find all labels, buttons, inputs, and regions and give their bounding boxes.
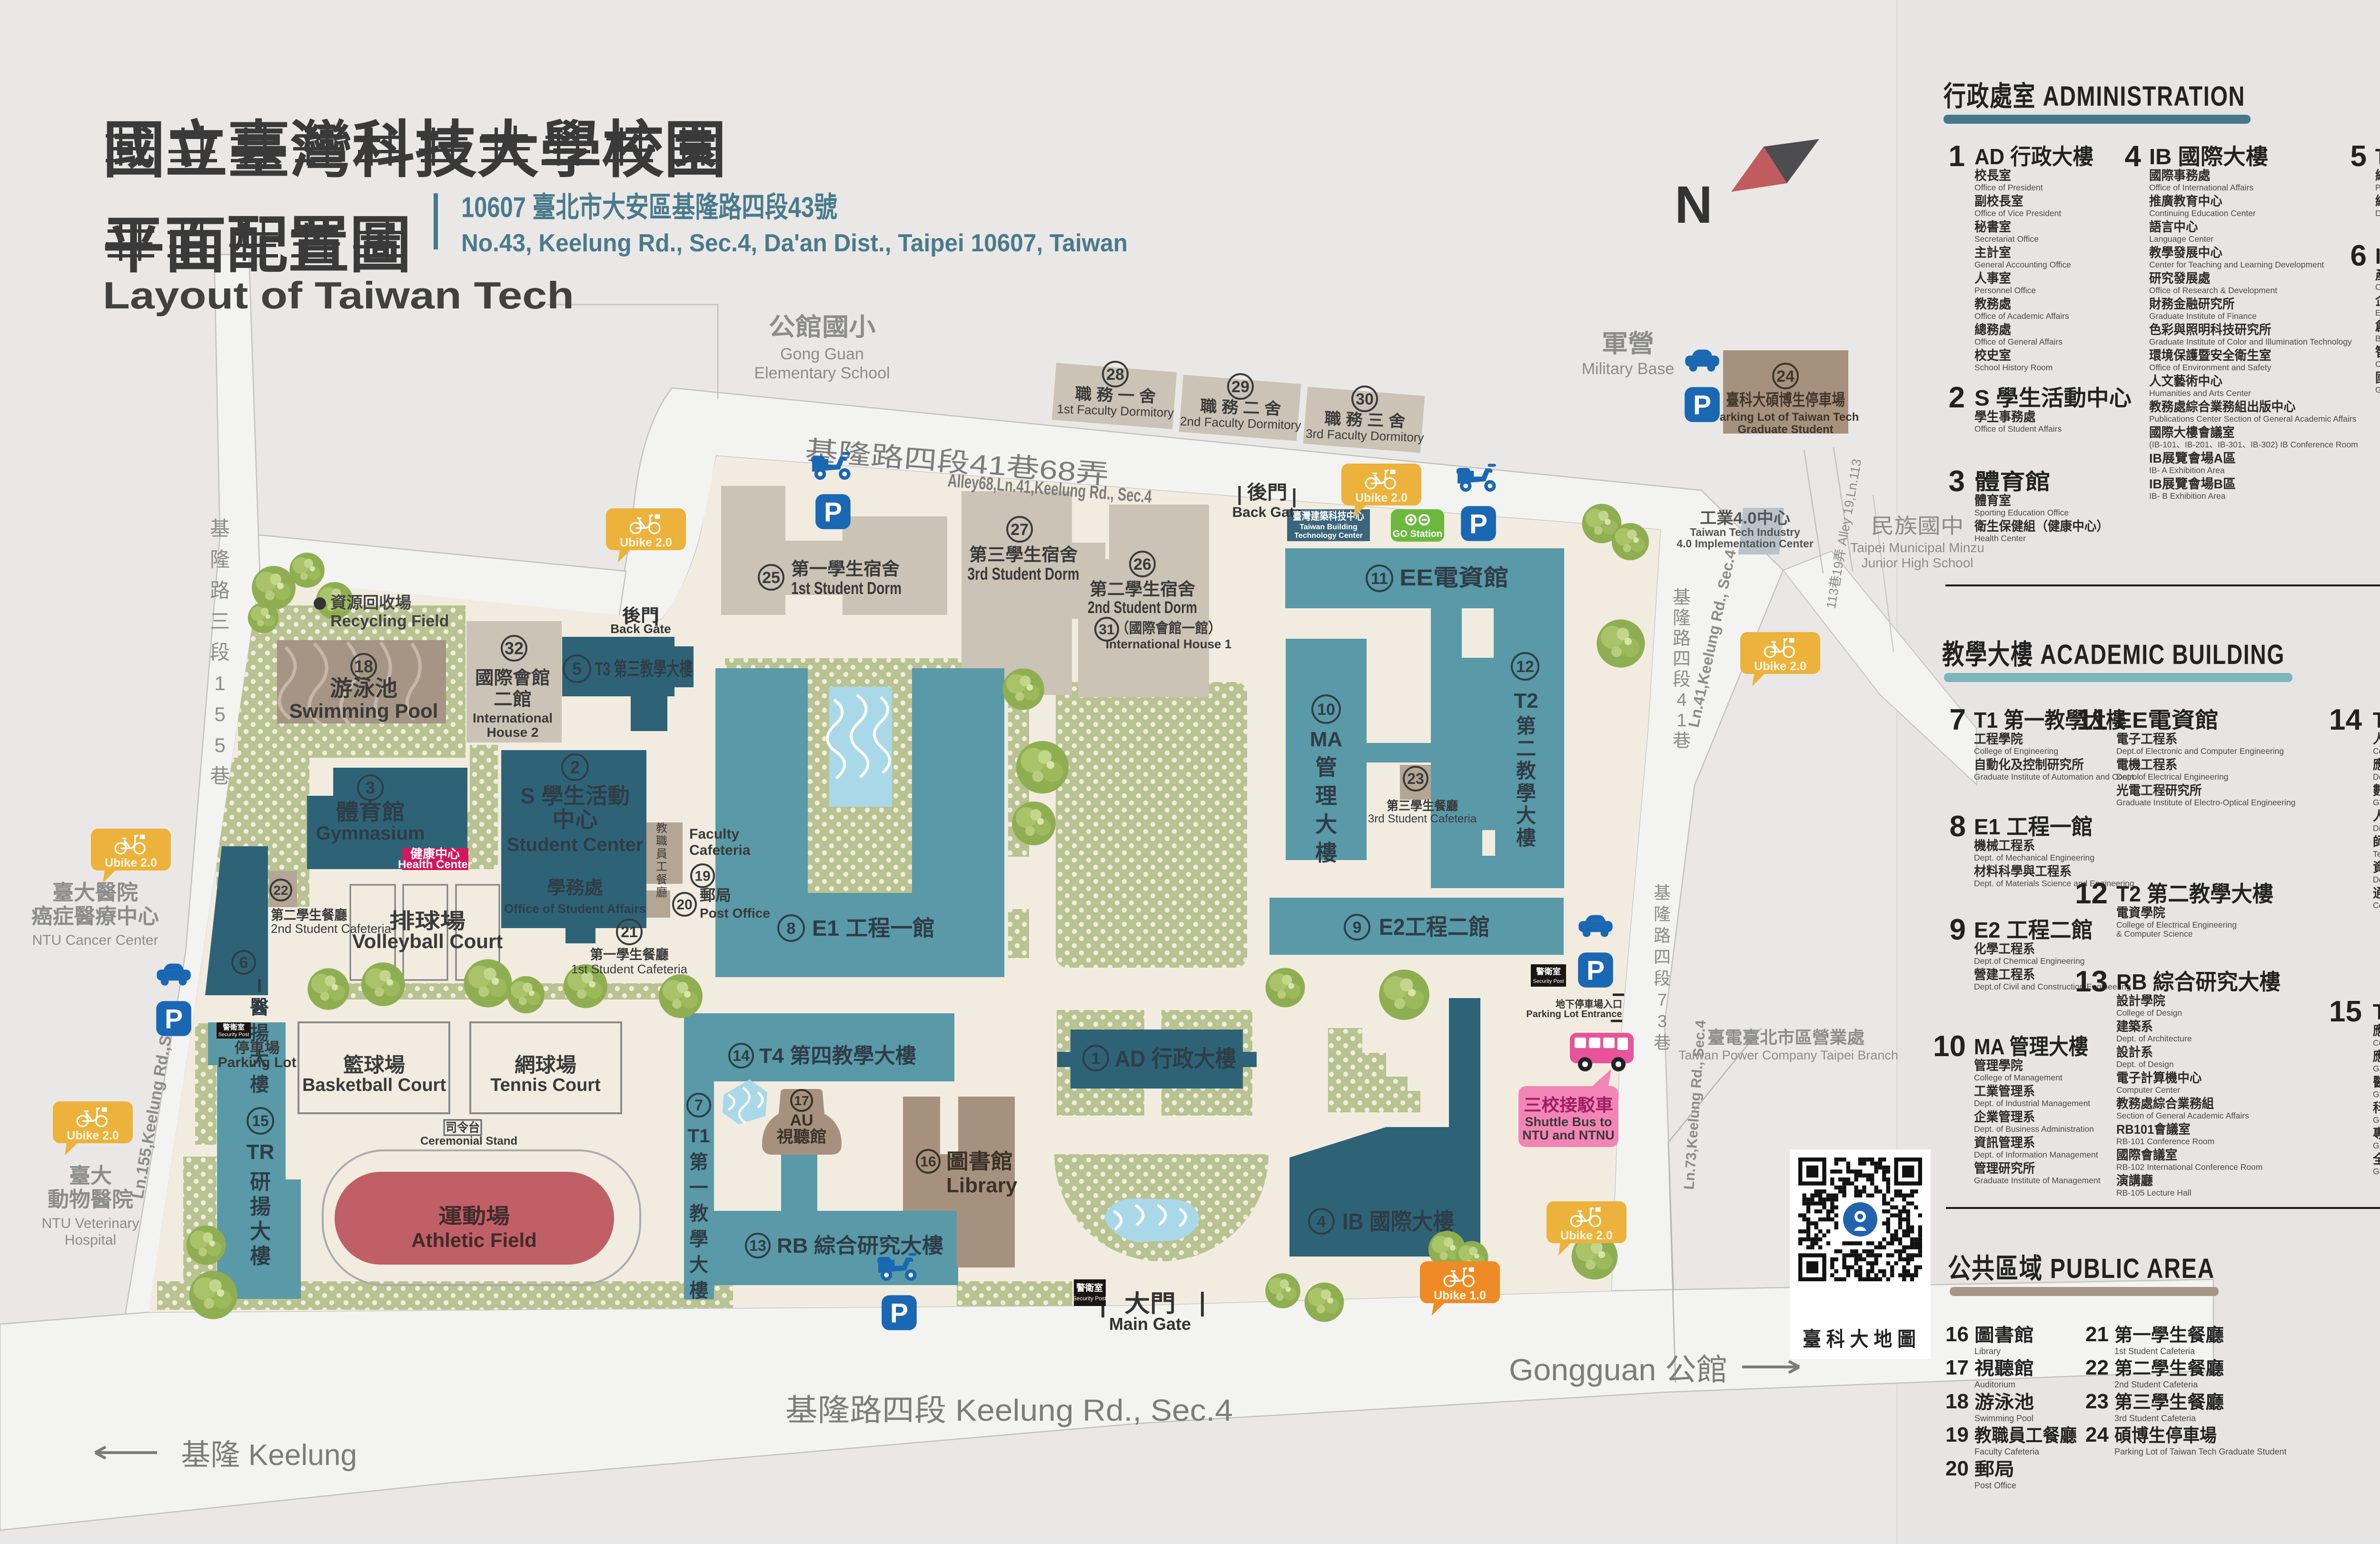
svg-text:郵局: 郵局 — [700, 887, 731, 904]
svg-text:Shuttle Bus to: Shuttle Bus to — [1525, 1115, 1612, 1129]
svg-text:Layout of Taiwan Tech: Layout of Taiwan Tech — [103, 274, 574, 317]
svg-text:Teacher Education Center: Teacher Education Center — [2373, 849, 2380, 859]
svg-text:三校接駁車: 三校接駁車 — [1524, 1095, 1613, 1115]
svg-text:公館國小: 公館國小 — [769, 314, 876, 341]
svg-text:衛生保健組（健康中心）: 衛生保健組（健康中心） — [1974, 519, 2109, 534]
svg-text:Office of General Affairs: Office of General Affairs — [1974, 337, 2063, 346]
svg-text:國際會館: 國際會館 — [475, 668, 550, 688]
svg-text:教職員工餐廳: 教職員工餐廳 — [1974, 1426, 2077, 1446]
svg-text:International: International — [473, 711, 553, 725]
svg-text:E1 工程一館: E1 工程一館 — [1974, 814, 2093, 839]
svg-text:電子計算機中心: 電子計算機中心 — [2116, 1070, 2202, 1085]
svg-text:國際會議室: 國際會議室 — [2116, 1148, 2177, 1162]
svg-text:AD 行政大樓: AD 行政大樓 — [1115, 1047, 1236, 1072]
svg-text:產學營運處: 產學營運處 — [2375, 267, 2380, 282]
svg-text:1st Student Dorm: 1st Student Dorm — [791, 578, 902, 598]
svg-text:24: 24 — [1776, 367, 1795, 386]
svg-text:排球場: 排球場 — [389, 910, 466, 933]
svg-text:工業管理系: 工業管理系 — [1974, 1084, 2035, 1099]
svg-text:12: 12 — [2075, 877, 2108, 910]
svg-text:臺 科 大 地 圖: 臺 科 大 地 圖 — [1803, 1328, 1916, 1350]
svg-text:Enterprise Service Center: Enterprise Service Center — [2375, 308, 2380, 317]
svg-text:Office of Student Affairs: Office of Student Affairs — [504, 901, 646, 916]
svg-text:Health Center: Health Center — [398, 858, 472, 871]
svg-text:校長室: 校長室 — [1974, 168, 2011, 183]
svg-text:第三學生餐廳: 第三學生餐廳 — [2114, 1393, 2224, 1413]
svg-text:企業管理系: 企業管理系 — [1974, 1109, 2035, 1124]
svg-text:總務處檔案室: 總務處檔案室 — [2375, 194, 2380, 208]
svg-text:Dept. of Applied Foreign Langu: Dept. of Applied Foreign Languages — [2373, 772, 2380, 782]
svg-text:籃球場: 籃球場 — [343, 1054, 405, 1076]
svg-text:2: 2 — [1949, 381, 1965, 414]
svg-text:Property Management Division o: Property Management Division of General … — [2375, 183, 2380, 192]
svg-text:Graduate Institute of Biomedic: Graduate Institute of Biomedical Enginee… — [2373, 1089, 2380, 1099]
svg-text:Parking Lot Entrance: Parking Lot Entrance — [1526, 1009, 1622, 1019]
svg-text:地下停車場入口: 地下停車場入口 — [1556, 999, 1622, 1010]
svg-text:Taiwan Building: Taiwan Building — [1299, 523, 1357, 531]
svg-text:MA 管理大樓: MA 管理大樓 — [1974, 1034, 2088, 1059]
svg-text:Junior High School: Junior High School — [1861, 555, 1973, 570]
svg-text:第二學生餐廳: 第二學生餐廳 — [2114, 1359, 2224, 1379]
svg-text:College of Management: College of Management — [1974, 1073, 2063, 1082]
svg-text:Parking Lot of Taiwan Tech Gra: Parking Lot of Taiwan Tech Graduate Stud… — [2114, 1447, 2287, 1456]
svg-text:大門: 大門 — [1124, 1290, 1176, 1317]
svg-text:4.0 Implementation Center: 4.0 Implementation Center — [1676, 537, 1814, 550]
svg-text:動物醫院: 動物醫院 — [48, 1188, 133, 1211]
svg-text:Office of International Affair: Office of International Affairs — [2149, 183, 2253, 192]
svg-text:College of Engineering: College of Engineering — [1974, 746, 2058, 756]
svg-text:Ubike 2.0: Ubike 2.0 — [1355, 491, 1408, 505]
svg-text:Publications Center Section of: Publications Center Section of General A… — [2149, 414, 2357, 424]
svg-text:臺大醫院: 臺大醫院 — [52, 881, 138, 904]
svg-text:T3 第三教學大樓: T3 第三教學大樓 — [595, 659, 693, 680]
svg-text:應用外語系: 應用外語系 — [2373, 757, 2380, 772]
svg-text:27: 27 — [1011, 521, 1029, 539]
svg-text:S 學生活動: S 學生活動 — [520, 783, 630, 808]
svg-text:（國際會館一館）: （國際會館一館） — [1116, 620, 1221, 636]
svg-text:17: 17 — [1945, 1356, 1969, 1379]
svg-text:總務處: 總務處 — [1974, 322, 2011, 337]
svg-text:8: 8 — [787, 920, 796, 938]
svg-text:9: 9 — [1353, 919, 1362, 937]
svg-text:Graduate Institute of Electro-: Graduate Institute of Electro-Optical En… — [2116, 798, 2295, 807]
svg-text:癌症醫療中心: 癌症醫療中心 — [31, 905, 159, 928]
svg-text:30: 30 — [1356, 390, 1374, 408]
svg-text:12: 12 — [1516, 658, 1534, 676]
svg-text:Security Post: Security Post — [218, 1032, 249, 1038]
svg-text:游泳池: 游泳池 — [330, 676, 397, 701]
svg-text:1: 1 — [1949, 140, 1965, 173]
svg-text:Main Gate: Main Gate — [1109, 1314, 1191, 1334]
svg-text:IB展覽會場B區: IB展覽會場B區 — [2149, 476, 2236, 491]
svg-text:視聽館: 視聽館 — [1974, 1359, 2034, 1379]
svg-text:Gymnasium: Gymnasium — [316, 823, 425, 844]
svg-text:環境保護暨安全衛生室: 環境保護暨安全衛生室 — [2149, 348, 2271, 363]
svg-text:國際事務處: 國際事務處 — [2149, 168, 2210, 183]
svg-text:1st Student Cafeteria: 1st Student Cafeteria — [571, 962, 688, 976]
svg-text:Dept. of Mechanical Engineerin: Dept. of Mechanical Engineering — [1974, 853, 2094, 862]
svg-text:31: 31 — [1099, 622, 1114, 638]
svg-text:Business Incubation Center: Business Incubation Center — [2375, 334, 2380, 343]
svg-text:停車場: 停車場 — [235, 1040, 280, 1056]
svg-text:人文藝術中心: 人文藝術中心 — [2149, 374, 2222, 388]
svg-text:AU: AU — [790, 1111, 813, 1129]
svg-text:4: 4 — [2125, 140, 2142, 173]
svg-text:RB101會議室: RB101會議室 — [2116, 1122, 2191, 1137]
svg-text:Office of Vice President: Office of Vice President — [1974, 208, 2061, 218]
svg-text:General Accounting Office: General Accounting Office — [1974, 260, 2071, 269]
svg-text:Dept. of Materials Science and: Dept. of Materials Science and Engineeri… — [1974, 879, 2134, 888]
svg-text:IB 國際大樓: IB 國際大樓 — [1342, 1209, 1454, 1235]
svg-text:主計室: 主計室 — [1974, 245, 2011, 260]
svg-text:研究發展處: 研究發展處 — [2149, 271, 2210, 286]
svg-text:民族國中: 民族國中 — [1871, 515, 1964, 538]
svg-text:2: 2 — [570, 758, 580, 777]
svg-text:7: 7 — [1950, 703, 1966, 736]
svg-text:15: 15 — [252, 1112, 269, 1129]
svg-text:GO Station: GO Station — [1393, 529, 1442, 539]
svg-text:T3 第三教學大樓: T3 第三教學大樓 — [2375, 144, 2380, 169]
svg-text:圖書館: 圖書館 — [946, 1150, 1013, 1173]
svg-text:Basketball Court: Basketball Court — [302, 1075, 446, 1095]
svg-text:11: 11 — [2076, 703, 2108, 736]
svg-text:No.43, Keelung Rd., Sec.4, Da': No.43, Keelung Rd., Sec.4, Da'an Dist., … — [461, 229, 1128, 257]
svg-text:總務處保管組: 總務處保管組 — [2375, 168, 2380, 183]
svg-text:建築系: 建築系 — [2116, 1019, 2153, 1034]
svg-text:第二教學大樓: 第二教學大樓 — [1516, 715, 1536, 849]
svg-text:智財推廣中心: 智財推廣中心 — [2375, 345, 2380, 359]
svg-text:6: 6 — [239, 954, 248, 972]
svg-text:11: 11 — [1371, 570, 1388, 588]
svg-text:Taiwan Power Company Taipei Br: Taiwan Power Company Taipei Branch — [1678, 1048, 1898, 1062]
svg-text:國際大樓會議室: 國際大樓會議室 — [2149, 425, 2235, 440]
svg-text:通識教育中心: 通識教育中心 — [2373, 886, 2380, 901]
svg-text:Parking Lot: Parking Lot — [218, 1055, 296, 1070]
svg-text:人文社會學科: 人文社會學科 — [2373, 809, 2380, 823]
svg-text:IB- B Exhibition Area: IB- B Exhibition Area — [2149, 491, 2226, 501]
svg-text:創新育成中心: 創新育成中心 — [2375, 319, 2380, 334]
svg-text:機械工程系: 機械工程系 — [1974, 839, 2035, 853]
svg-text:T1: T1 — [688, 1126, 710, 1147]
svg-text:College of Liberal Arts and So: College of Liberal Arts and Social Scien… — [2373, 746, 2380, 756]
svg-text:Dept.of Computer Science and I: Dept.of Computer Science and Information… — [2373, 875, 2380, 884]
svg-text:18: 18 — [1945, 1390, 1969, 1413]
svg-text:Graduate Institute of Technolo: Graduate Institute of Technology Managem… — [2373, 1115, 2380, 1125]
svg-text:IB展覽會場A區: IB展覽會場A區 — [2149, 451, 2236, 465]
svg-text:22: 22 — [273, 883, 288, 898]
svg-text:32: 32 — [505, 639, 524, 658]
svg-text:Student Center: Student Center — [507, 834, 644, 855]
svg-text:T2: T2 — [1514, 689, 1538, 713]
svg-text:Athletic Field: Athletic Field — [411, 1229, 537, 1251]
svg-text:13: 13 — [749, 1237, 766, 1254]
svg-text:Secretariat Office: Secretariat Office — [1974, 234, 2039, 244]
svg-text:人事室: 人事室 — [1974, 271, 2011, 286]
svg-text:Technology Center: Technology Center — [1294, 532, 1363, 540]
svg-text:17: 17 — [794, 1093, 809, 1108]
svg-text:Dept.of Electronic and Compute: Dept.of Electronic and Computer Engineer… — [2116, 746, 2284, 756]
svg-text:科技管理研究所: 科技管理研究所 — [2373, 1100, 2380, 1115]
svg-text:第三學生宿舍: 第三學生宿舍 — [969, 544, 1078, 564]
svg-text:10: 10 — [1933, 1030, 1966, 1063]
svg-text:警衛室: 警衛室 — [1536, 967, 1561, 976]
svg-text:Dept. of Information Managemen: Dept. of Information Management — [1974, 1150, 2098, 1159]
svg-text:13: 13 — [2075, 965, 2108, 998]
svg-text:15: 15 — [2329, 995, 2362, 1028]
svg-text:9: 9 — [1950, 913, 1966, 946]
svg-text:Security Post: Security Post — [1073, 1295, 1107, 1302]
svg-text:16: 16 — [920, 1154, 936, 1170]
svg-text:Faculty Cafeteria: Faculty Cafeteria — [1974, 1447, 2040, 1456]
svg-text:運動場: 運動場 — [438, 1205, 510, 1228]
svg-text:司令台: 司令台 — [446, 1120, 480, 1135]
svg-text:Health Center: Health Center — [1974, 534, 2026, 543]
svg-text:第一學生餐廳: 第一學生餐廳 — [2114, 1326, 2224, 1346]
svg-text:Global Research & Industry All: Global Research & Industry Alliance — [2375, 385, 2380, 395]
svg-text:Graduate Institute of Automati: Graduate Institute of Automation and Con… — [1974, 772, 2139, 782]
svg-text:21: 21 — [621, 923, 638, 940]
svg-text:財務金融研究所: 財務金融研究所 — [2149, 297, 2235, 311]
svg-text:Library: Library — [1974, 1346, 2001, 1356]
svg-text:2nd Student Cafeteria: 2nd Student Cafeteria — [2114, 1380, 2198, 1389]
svg-text:圖書館: 圖書館 — [1974, 1326, 2034, 1346]
svg-text:23: 23 — [1407, 770, 1424, 787]
svg-text:資訊工程系: 資訊工程系 — [2373, 860, 2380, 875]
svg-text:20: 20 — [676, 897, 692, 913]
svg-text:House 2: House 2 — [487, 725, 539, 740]
svg-text:Dept.of Chemical Engineering: Dept.of Chemical Engineering — [1974, 956, 2085, 966]
svg-text:Gongguan 公館: Gongguan 公館 — [1509, 1353, 1728, 1387]
svg-text:6: 6 — [2350, 239, 2367, 272]
svg-text:Parking Lot of Taiwan Tech: Parking Lot of Taiwan Tech — [1712, 411, 1859, 424]
svg-text:副校長室: 副校長室 — [1974, 194, 2023, 208]
svg-text:應用科技研究所: 應用科技研究所 — [2373, 1049, 2380, 1064]
svg-text:管理研究所: 管理研究所 — [1974, 1161, 2035, 1176]
svg-text:NTU Veterinary: NTU Veterinary — [41, 1216, 139, 1231]
svg-text:Security Post: Security Post — [1533, 979, 1564, 984]
svg-text:Volleyball Court: Volleyball Court — [352, 930, 503, 952]
svg-text:3: 3 — [366, 778, 375, 798]
svg-text:臺灣建築科技中心: 臺灣建築科技中心 — [1293, 510, 1364, 522]
svg-text:5: 5 — [2350, 140, 2367, 173]
svg-text:電子工程系: 電子工程系 — [2116, 732, 2177, 746]
svg-text:校史室: 校史室 — [1974, 348, 2011, 363]
svg-text:AD 行政大樓: AD 行政大樓 — [1974, 144, 2093, 169]
svg-text:N: N — [1675, 176, 1712, 234]
svg-text:School History Room: School History Room — [1974, 363, 2053, 372]
svg-text:Graduate Institute of Finance: Graduate Institute of Finance — [2149, 311, 2257, 321]
svg-text:基隆路四段 Keelung Rd., Sec.4: 基隆路四段 Keelung Rd., Sec.4 — [785, 1393, 1233, 1427]
svg-text:3: 3 — [1949, 465, 1965, 498]
svg-text:Graduate Institute of Manageme: Graduate Institute of Management — [1974, 1176, 2101, 1185]
svg-text:26: 26 — [1133, 555, 1151, 574]
svg-text:色彩與照明科技研究所: 色彩與照明科技研究所 — [2149, 322, 2271, 337]
svg-text:Dept. of Electrical Engineerin: Dept. of Electrical Engineering — [2116, 772, 2228, 782]
svg-text:T4 第四教學大樓: T4 第四教學大樓 — [2373, 708, 2380, 732]
svg-text:Ubike 2.0: Ubike 2.0 — [620, 536, 672, 549]
svg-text:20: 20 — [1945, 1457, 1969, 1480]
svg-text:演講廳: 演講廳 — [2116, 1173, 2153, 1188]
svg-text:游泳池: 游泳池 — [1974, 1393, 2034, 1413]
svg-text:Cafeteria: Cafeteria — [689, 842, 751, 858]
svg-text:軍營: 軍營 — [1602, 330, 1654, 358]
svg-text:化學工程系: 化學工程系 — [1974, 942, 2035, 956]
svg-text:Continuing Education Center: Continuing Education Center — [2149, 208, 2256, 218]
svg-text:Post Office: Post Office — [700, 906, 770, 920]
svg-text:18: 18 — [354, 657, 373, 676]
svg-text:第二學生宿舍: 第二學生宿舍 — [1090, 579, 1195, 599]
svg-text:Ceremonial Stand: Ceremonial Stand — [420, 1135, 517, 1148]
svg-text:E2 工程二館: E2 工程二館 — [1974, 918, 2093, 942]
svg-text:語言中心: 語言中心 — [2149, 219, 2198, 234]
svg-text:臺電臺北市區營業處: 臺電臺北市區營業處 — [1707, 1028, 1864, 1047]
svg-text:光電工程研究所: 光電工程研究所 — [2116, 783, 2202, 798]
svg-text:Auditorium: Auditorium — [1974, 1380, 2015, 1389]
svg-text:警衛室: 警衛室 — [222, 1023, 245, 1031]
svg-text:Humanities and Arts Center: Humanities and Arts Center — [2149, 388, 2251, 398]
svg-text:郵局: 郵局 — [1974, 1460, 2014, 1480]
svg-text:IB 國際大樓: IB 國際大樓 — [2149, 144, 2268, 169]
svg-text:體育館: 體育館 — [1974, 469, 2051, 494]
svg-text:Graduate Student: Graduate Student — [1737, 423, 1833, 436]
svg-text:臺科大碩博生停車場: 臺科大碩博生停車場 — [1726, 391, 1845, 409]
svg-text:Sporting Education Office: Sporting Education Office — [1974, 508, 2069, 517]
svg-text:T4 第四教學大樓: T4 第四教學大樓 — [759, 1044, 916, 1068]
svg-text:Graduate Institute of Color an: Graduate Institute of Color and Illumina… — [2149, 337, 2352, 346]
svg-text:RB-102 International Conferenc: RB-102 International Conference Room — [2116, 1162, 2262, 1172]
svg-text:19: 19 — [1945, 1423, 1969, 1446]
svg-text:Military Base: Military Base — [1582, 360, 1675, 378]
svg-text:視聽館: 視聽館 — [777, 1128, 827, 1146]
svg-text:Graduate Institute of Applied: Graduate Institute of Applied Science an… — [2373, 1064, 2380, 1073]
svg-text:臺大: 臺大 — [69, 1164, 112, 1188]
svg-text:Office of President: Office of President — [1974, 183, 2043, 192]
svg-text:Elementary School: Elementary School — [754, 364, 890, 382]
svg-text:NTU Cancer Center: NTU Cancer Center — [32, 932, 158, 948]
svg-text:Ubike 2.0: Ubike 2.0 — [67, 1129, 119, 1142]
svg-text:全球發展工程學士學位學程: 全球發展工程學士學位學程 — [2372, 1152, 2380, 1167]
svg-text:Ubike 2.0: Ubike 2.0 — [1560, 1229, 1613, 1242]
svg-text:(IB-101、IB-201、IB-301、IB-302): (IB-101、IB-201、IB-301、IB-302) IB Confere… — [2149, 440, 2358, 449]
svg-text:體育館: 體育館 — [336, 800, 405, 824]
svg-text:Library: Library — [946, 1174, 1018, 1197]
svg-text:RB 綜合研究大樓: RB 綜合研究大樓 — [777, 1234, 943, 1257]
svg-text:營建工程系: 營建工程系 — [1974, 968, 2035, 982]
svg-text:25: 25 — [762, 569, 780, 587]
svg-text:學生事務處: 學生事務處 — [1974, 410, 2035, 424]
svg-text:Ubike 1.0: Ubike 1.0 — [1434, 1289, 1486, 1302]
svg-text:College of Electrical Engineer: College of Electrical Engineering — [2116, 920, 2237, 930]
svg-text:RB 綜合研究大樓: RB 綜合研究大樓 — [2116, 970, 2281, 994]
svg-text:Graduate Institute of Digital: Graduate Institute of Digital Learning a… — [2373, 798, 2380, 807]
svg-text:3rd Student Cafeteria: 3rd Student Cafeteria — [2114, 1414, 2196, 1423]
svg-text:2nd Student Dorm: 2nd Student Dorm — [1088, 598, 1197, 617]
svg-text:專利研究所: 專利研究所 — [2373, 1126, 2380, 1141]
svg-text:Taiwan Tech Industry: Taiwan Tech Industry — [1690, 526, 1800, 538]
svg-text:基隆 Keelung: 基隆 Keelung — [181, 1439, 357, 1472]
svg-text:Center for Intellectual Proper: Center for Intellectual Property — [2375, 359, 2380, 369]
svg-text:14: 14 — [733, 1047, 750, 1064]
svg-text:工業4.0中心: 工業4.0中心 — [1700, 509, 1790, 527]
svg-text:電機工程系: 電機工程系 — [2116, 758, 2177, 772]
svg-text:Dept. of Design: Dept. of Design — [2116, 1059, 2174, 1069]
svg-text:管理學院: 管理學院 — [1974, 1058, 2023, 1073]
svg-text:設計學院: 設計學院 — [2116, 993, 2165, 1008]
svg-text:Personnel Office: Personnel Office — [1974, 286, 2036, 295]
svg-text:23: 23 — [2085, 1390, 2109, 1413]
svg-text:Gong Guan: Gong Guan — [780, 345, 864, 363]
svg-text:教職員工餐廳: 教職員工餐廳 — [656, 822, 667, 899]
svg-text:8: 8 — [1950, 810, 1966, 843]
svg-text:自動化及控制研究所: 自動化及控制研究所 — [1974, 757, 2084, 772]
svg-text:Swimming Pool: Swimming Pool — [1974, 1414, 2033, 1423]
svg-text:RB-105 Lecture Hall: RB-105 Lecture Hall — [2116, 1188, 2192, 1198]
svg-text:5: 5 — [572, 659, 582, 679]
svg-text:24: 24 — [2085, 1423, 2109, 1446]
svg-text:Tennis Court: Tennis Court — [490, 1075, 601, 1095]
svg-text:Documentation Division of Gene: Documentation Division of General Affair… — [2375, 208, 2380, 218]
svg-text:Ubike 2.0: Ubike 2.0 — [105, 856, 157, 870]
svg-text:Office of Student Affairs: Office of Student Affairs — [1974, 424, 2062, 434]
svg-text:NTU and NTNU: NTU and NTNU — [1522, 1128, 1614, 1142]
svg-text:Computer Center: Computer Center — [2116, 1085, 2180, 1095]
svg-text:IB- A Exhibition Area: IB- A Exhibition Area — [2149, 465, 2225, 475]
svg-text:Dept. of Industrial Management: Dept. of Industrial Management — [1974, 1099, 2090, 1108]
svg-text:Language Center: Language Center — [2149, 234, 2213, 244]
svg-text:3rd Student Dorm: 3rd Student Dorm — [968, 564, 1080, 584]
svg-text:第一學生餐廳: 第一學生餐廳 — [590, 947, 669, 962]
svg-text:7: 7 — [694, 1097, 703, 1114]
svg-text:教務處: 教務處 — [1974, 297, 2011, 311]
svg-text:19: 19 — [694, 869, 710, 884]
svg-text:Swimming Pool: Swimming Pool — [289, 700, 438, 722]
svg-text:Section of General Academic Af: Section of General Academic Affairs — [2116, 1111, 2249, 1120]
svg-text:S 學生活動中心: S 學生活動中心 — [1974, 386, 2132, 410]
svg-text:應用科技學院: 應用科技學院 — [2373, 1023, 2380, 1038]
svg-text:College of Design: College of Design — [2116, 1008, 2182, 1018]
svg-text:14: 14 — [2329, 703, 2362, 736]
svg-text:行政處室 ADMINISTRATION: 行政處室 ADMINISTRATION — [1944, 81, 2245, 112]
svg-text:Office of Environment and Safe: Office of Environment and Safety — [2149, 363, 2271, 372]
svg-text:29: 29 — [1231, 378, 1249, 396]
svg-text:Office of Research & Developme: Office of Research & Development — [2149, 286, 2277, 295]
svg-text:T2 第二教學大樓: T2 第二教學大樓 — [2116, 881, 2273, 906]
svg-text:MA: MA — [1310, 728, 1342, 751]
svg-text:28: 28 — [1106, 366, 1124, 384]
svg-text:秘書室: 秘書室 — [1974, 219, 2011, 234]
svg-text:Back Gate: Back Gate — [1232, 505, 1302, 520]
svg-text:國際產學聯盟推動辦公室: 國際產學聯盟推動辦公室 — [2375, 370, 2380, 385]
svg-text:Taipei Municipal Minzu: Taipei Municipal Minzu — [1850, 540, 1984, 555]
svg-text:Center for Teaching and Learni: Center for Teaching and Learning Develop… — [2149, 260, 2324, 269]
svg-text:1st Student Cafeteria: 1st Student Cafeteria — [2114, 1346, 2195, 1356]
svg-text:16: 16 — [1945, 1323, 1969, 1346]
svg-text:設計系: 設計系 — [2116, 1045, 2153, 1059]
svg-text:警衛室: 警衛室 — [1076, 1282, 1103, 1293]
svg-text:TR 研揚大樓: TR 研揚大樓 — [2373, 1000, 2380, 1024]
svg-text:第二學生餐廳: 第二學生餐廳 — [271, 907, 347, 922]
svg-text:TR: TR — [247, 1140, 275, 1164]
svg-text:Back Gate: Back Gate — [610, 622, 671, 636]
svg-text:21: 21 — [2085, 1323, 2109, 1346]
svg-text:3rd Student Cafeteria: 3rd Student Cafeteria — [1368, 812, 1477, 825]
svg-text:EE電資館: EE電資館 — [2116, 708, 2219, 732]
svg-text:教務處綜合業務組出版中心: 教務處綜合業務組出版中心 — [2149, 399, 2296, 414]
svg-text:EE電資館: EE電資館 — [1399, 565, 1509, 591]
svg-text:10: 10 — [1317, 701, 1335, 719]
svg-text:數位學習與教育研究所: 數位學習與教育研究所 — [2373, 783, 2380, 798]
svg-text:網球場: 網球場 — [515, 1054, 576, 1076]
